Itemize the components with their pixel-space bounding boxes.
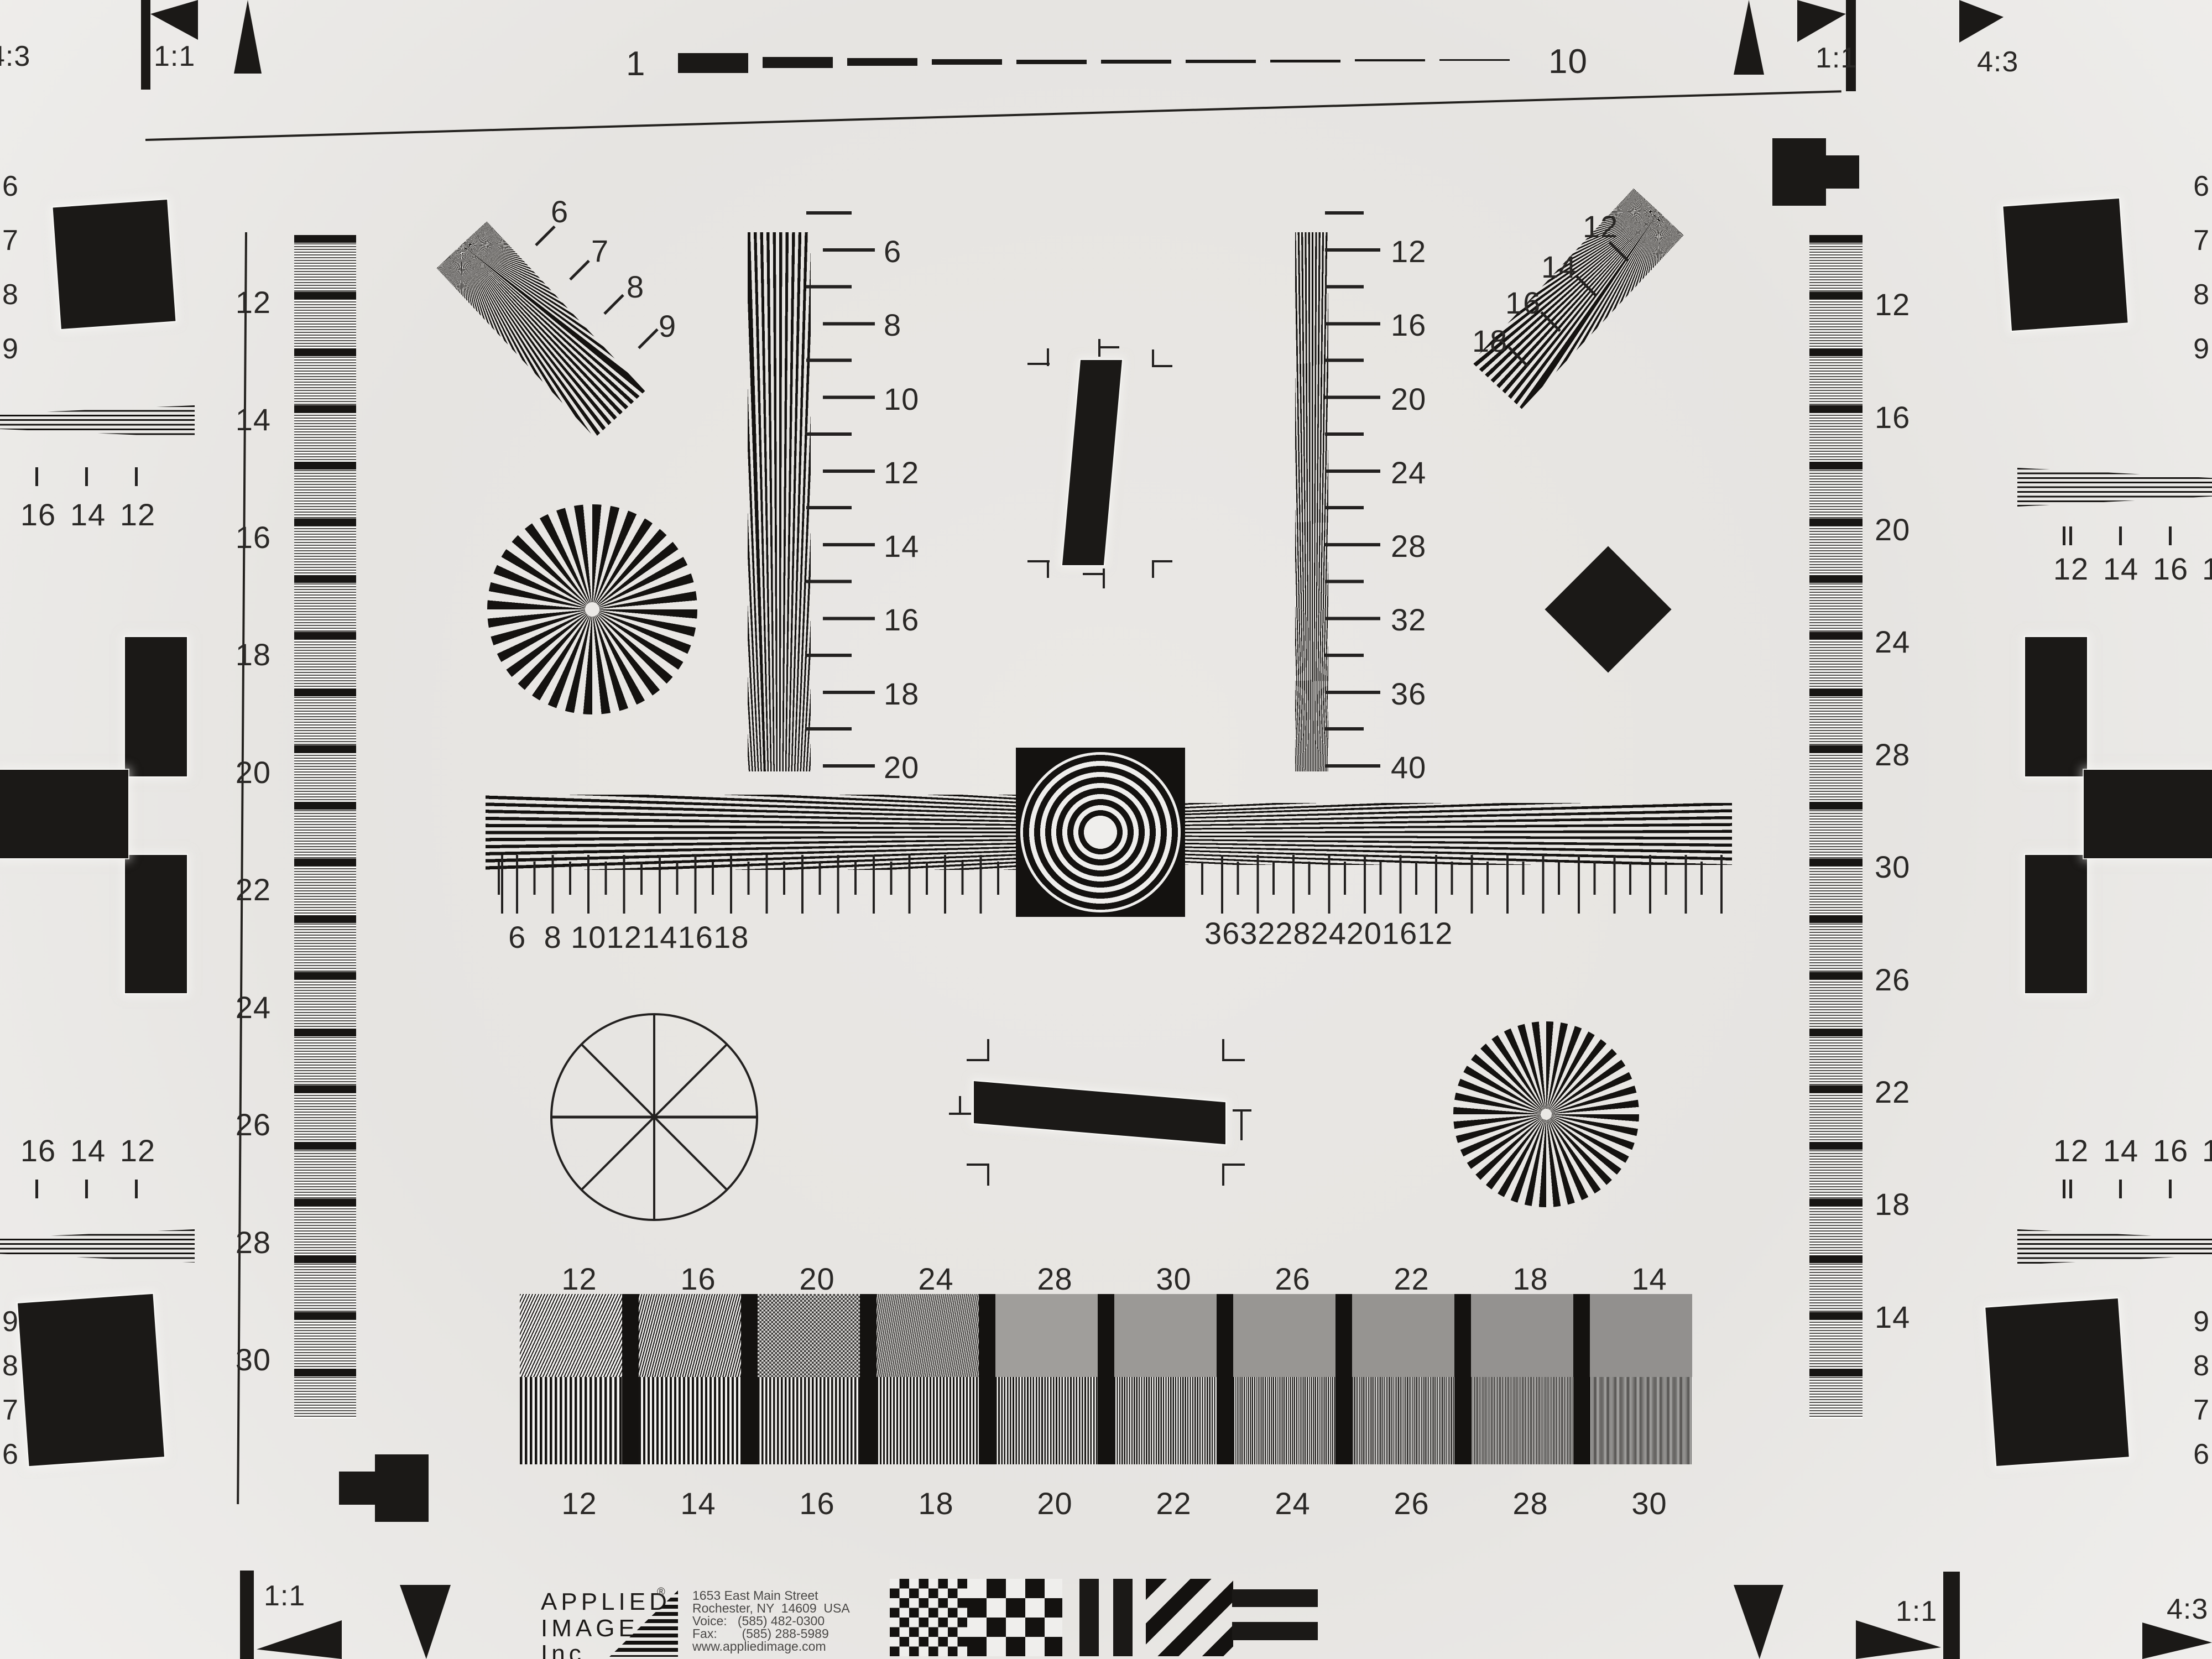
edge-number: 9 — [2, 322, 19, 376]
ruler-right-label: 20 — [1347, 915, 1382, 951]
edge-right-mid2-numbers: 121416 — [2046, 1133, 2195, 1168]
fan-tick — [569, 260, 589, 280]
wedge-right-label: 16 — [1391, 288, 1426, 362]
registration-bar-top-left — [141, 0, 150, 90]
freq-panel — [758, 1377, 860, 1464]
ruler-right-labels: 36322824201612 — [1204, 915, 1453, 951]
dash — [847, 58, 917, 66]
registration-bar-bottom-left — [240, 1571, 254, 1659]
ruler-right-short-ticks — [1201, 862, 1729, 895]
bracket — [987, 1164, 989, 1186]
ruler-right-label: 32 — [1240, 915, 1275, 951]
bracket — [1222, 1164, 1245, 1166]
grayscale-left-label: 30 — [236, 1301, 271, 1419]
block-bottom-label: 14 — [639, 1485, 758, 1521]
wedge-right-label: 28 — [1391, 509, 1426, 583]
edge-number: 8 — [2, 268, 19, 322]
wedge-right-label: 36 — [1391, 657, 1426, 731]
ruler-right-label: 16 — [1382, 915, 1417, 951]
dash — [1439, 59, 1510, 61]
right-beam-web — [2084, 770, 2212, 858]
wedge-right-label: 24 — [1391, 436, 1426, 509]
edge-number: 16 — [13, 497, 63, 533]
edge-number-cut: 8 — [0, 1133, 1, 1168]
ratio-label-top-right: 4:3 — [1977, 45, 2018, 79]
left-beam-top — [125, 637, 187, 776]
grayscale-right-label: 12 — [1875, 248, 1910, 361]
concentric-rings-target — [1016, 748, 1185, 917]
block-bottom-label: 30 — [1590, 1485, 1709, 1521]
edge-fan-left-top — [0, 405, 195, 437]
block-top-label: 20 — [758, 1261, 877, 1297]
ruler-left-label: 14 — [642, 919, 678, 955]
ruler-left-label: 8 — [535, 919, 571, 955]
checkerboard-fine — [890, 1579, 967, 1656]
dash — [1270, 60, 1340, 62]
block-top-label: 22 — [1352, 1261, 1471, 1297]
bracket — [1047, 560, 1049, 578]
edge-right-bottom-numbers: 9876 — [2177, 1300, 2210, 1477]
freq-panel — [639, 1377, 741, 1464]
dash — [932, 59, 1002, 65]
dash — [1101, 60, 1171, 64]
grayscale-right-label: 30 — [1875, 811, 1910, 923]
freq-panel — [1233, 1377, 1335, 1464]
grayscale-left-label: 28 — [236, 1183, 271, 1301]
bar-pointer-bottom-left-arm — [339, 1472, 375, 1505]
block-bottom-label: 20 — [995, 1485, 1114, 1521]
wedge-right-long-ticks — [1325, 248, 1380, 771]
block-bottom-label: 22 — [1114, 1485, 1233, 1521]
freq-panel — [1114, 1294, 1217, 1377]
right-beam-bottom — [2025, 855, 2087, 993]
horizontal-bar-pattern — [1232, 1622, 1318, 1640]
diagonal-stripe-pattern — [1146, 1579, 1233, 1656]
ruler-left-label: 12 — [607, 919, 643, 955]
edge-number: 8 — [2193, 268, 2210, 322]
bracket — [987, 1039, 989, 1061]
vertical-wedge-left — [748, 232, 811, 771]
wedge-left-label: 6 — [884, 215, 901, 288]
edge-number-cut: 8 — [0, 497, 1, 533]
dash — [1016, 60, 1087, 64]
vertical-bar-pattern — [1079, 1579, 1099, 1656]
vertical-bar-pattern — [1113, 1579, 1133, 1656]
corner-square-top-right — [2003, 199, 2127, 331]
edge-left-mid2-numbers: 161412 — [13, 1133, 163, 1168]
edge-number: 12 — [2046, 1133, 2096, 1168]
wedge-right-label: 40 — [1391, 731, 1426, 804]
right-arrow-icon — [1959, 0, 2004, 43]
fan-tick — [603, 294, 624, 315]
edge-right-mid-numbers: 121416 — [2046, 551, 2195, 587]
edge-number-cut: 1 — [2202, 1133, 2212, 1168]
scale-label-top-right: 1:1 — [1815, 41, 1857, 75]
freq-panel — [639, 1294, 741, 1377]
freq-panel — [1590, 1294, 1692, 1377]
tilt-test-line-horizontal — [145, 90, 1841, 141]
freq-panel — [1471, 1294, 1573, 1377]
edge-number: 9 — [2, 1300, 19, 1344]
logo-address-line: 1653 East Main Street — [692, 1589, 850, 1602]
grayscale-left-labels: 12141618202224262830 — [213, 243, 271, 1418]
edge-number: 12 — [113, 1133, 163, 1168]
wedge-right-label: 32 — [1391, 583, 1426, 656]
fan-label: 9 — [659, 308, 676, 344]
grayscale-right-labels: 12162024283026221814 — [1875, 248, 1941, 1373]
freq-panel — [1352, 1294, 1454, 1377]
freq-panel — [877, 1294, 979, 1377]
ruler-left-labels: 681012141618 — [499, 919, 749, 955]
registered-mark-icon: ® — [657, 1586, 665, 1599]
edge-number: 7 — [2193, 1388, 2210, 1432]
block-top-label: 28 — [995, 1261, 1114, 1297]
block-bottom-label: 12 — [520, 1485, 639, 1521]
right-arrow-icon — [2142, 1623, 2212, 1659]
edge-number: 6 — [2193, 159, 2210, 213]
bracket — [1152, 560, 1154, 578]
iso-resolution-test-chart: 1 10 4:3 1:1 1:1 4:3 1:1 1:1 4:3 — [0, 0, 2212, 1659]
grayscale-left-label: 18 — [236, 596, 271, 714]
grayscale-right-label: 14 — [1875, 1261, 1910, 1373]
logo-address-line: www.appliedimage.com — [692, 1640, 850, 1653]
block-bottom-labels: 12141618202224262830 — [520, 1485, 1709, 1521]
hyperbolic-fan-upper-left — [436, 221, 645, 438]
edge-number: 6 — [2193, 1432, 2210, 1477]
horizontal-bar-pattern — [1232, 1589, 1318, 1607]
right-arrow-icon — [1797, 0, 1846, 42]
fan-label: 8 — [627, 269, 644, 305]
bracket — [1027, 363, 1050, 365]
bracket — [1027, 560, 1050, 562]
wedge-left-long-ticks — [823, 248, 875, 771]
edge-number: 6 — [2, 1432, 19, 1477]
wedge-left-label: 10 — [884, 362, 919, 436]
fan-label: 14 — [1541, 249, 1577, 285]
edge-number: 8 — [2193, 1344, 2210, 1388]
logo-address-line: Fax: (585) 288-5989 — [692, 1627, 850, 1640]
bar-pointer-top-right — [1772, 138, 1826, 206]
up-triangle-icon — [1734, 0, 1764, 75]
ruler-left-short-ticks — [498, 862, 1012, 895]
ruler-left-label: 18 — [713, 919, 749, 955]
grayscale-left-label: 20 — [236, 713, 271, 831]
edge-number-cut: 1 — [2202, 551, 2212, 587]
edge-fan-left-bottom — [0, 1229, 195, 1262]
wedge-left-label: 16 — [884, 583, 919, 656]
ruler-right-label: 24 — [1311, 915, 1347, 951]
edge-ticks — [15, 467, 159, 486]
ratio-label-bottom-right: 4:3 — [2167, 1593, 2208, 1626]
wedge-left-label: 18 — [884, 657, 919, 731]
block-top-label: 30 — [1114, 1261, 1233, 1297]
scale-label-bottom-left: 1:1 — [264, 1579, 305, 1613]
fan-label: 7 — [591, 233, 609, 269]
edge-left-top-numbers: 6789 — [2, 159, 35, 376]
logo-image: IMAGE — [541, 1615, 639, 1642]
grayscale-right-label: 18 — [1875, 1148, 1910, 1260]
edge-left-bottom-numbers: 9876 — [2, 1300, 35, 1477]
dash — [1186, 60, 1256, 63]
logo-address: 1653 East Main StreetRochester, NY 14609… — [692, 1589, 850, 1653]
scale-label-bottom-right: 1:1 — [1896, 1595, 1937, 1628]
edge-ticks — [2056, 1180, 2212, 1198]
siemens-star-lower-right — [1453, 1021, 1639, 1207]
logo-address-line: Rochester, NY 14609 USA — [692, 1602, 850, 1615]
block-bottom-label: 28 — [1471, 1485, 1590, 1521]
edge-fan-right-top — [2017, 468, 2212, 507]
edge-number: 8 — [2, 1344, 19, 1388]
edge-fan-right-bottom — [2017, 1229, 2212, 1265]
ruler-left-label: 16 — [678, 919, 714, 955]
bracket — [1222, 1164, 1224, 1186]
bracket — [1222, 1059, 1245, 1061]
fan-label: 6 — [551, 194, 568, 229]
bar-pointer-top-right-arm — [1824, 155, 1859, 189]
grayscale-left-label: 24 — [236, 948, 271, 1066]
block-top-label: 16 — [639, 1261, 758, 1297]
grayscale-bar-right — [1809, 235, 1863, 1418]
bracket — [1152, 560, 1172, 562]
scale-label-top-left: 1:1 — [154, 40, 195, 73]
edge-number: 9 — [2193, 322, 2210, 376]
corner-square-bottom-left — [18, 1294, 164, 1466]
block-top-label: 26 — [1233, 1261, 1352, 1297]
wedge-left-label: 20 — [884, 731, 919, 804]
grayscale-left-label: 12 — [236, 243, 271, 361]
wedge-right-label: 20 — [1391, 362, 1426, 436]
bracket — [967, 1059, 989, 1061]
siemens-star-upper-left — [487, 504, 697, 714]
edge-right-top-numbers: 6789 — [2177, 159, 2210, 376]
down-triangle-icon — [400, 1585, 451, 1659]
edge-number: 16 — [2146, 1133, 2195, 1168]
freq-panel — [1590, 1377, 1692, 1464]
block-top-label: 14 — [1590, 1261, 1709, 1297]
dash — [763, 57, 833, 68]
slanted-edge-bar-vertical — [1062, 360, 1122, 565]
hyperbolic-fan-upper-right — [1472, 188, 1684, 409]
registration-bar-bottom-right — [1943, 1572, 1960, 1659]
edge-ticks — [2056, 526, 2212, 545]
freq-panel — [1233, 1294, 1335, 1377]
grayscale-left-label: 22 — [236, 831, 271, 949]
edge-ticks — [15, 1180, 159, 1198]
freq-panel — [995, 1377, 1098, 1464]
edge-number: 16 — [13, 1133, 63, 1168]
logo-applied: APPLIED — [541, 1588, 671, 1616]
frequency-block-top-row — [520, 1294, 1692, 1377]
wedge-left-label: 8 — [884, 288, 901, 362]
sector-circle — [549, 1012, 759, 1222]
freq-panel — [877, 1377, 979, 1464]
ruler-right-label: 36 — [1204, 915, 1240, 951]
edge-number: 6 — [2, 159, 19, 213]
edge-number: 7 — [2193, 213, 2210, 268]
bracket — [1152, 365, 1172, 367]
freq-panel — [520, 1294, 622, 1377]
dash — [678, 53, 748, 73]
left-beam-web — [0, 770, 128, 858]
fan-tick — [638, 328, 658, 349]
corner-square-top-left — [53, 200, 176, 329]
grayscale-left-label: 16 — [236, 478, 271, 596]
edge-number: 9 — [2193, 1300, 2210, 1344]
wedge-left-label: 12 — [884, 436, 919, 509]
edge-number: 12 — [2046, 551, 2096, 587]
grayscale-right-label: 22 — [1875, 1036, 1910, 1148]
block-bottom-label: 26 — [1352, 1485, 1471, 1521]
logo-address-line: Voice: (585) 482-0300 — [692, 1615, 850, 1627]
ruler-left-label: 10 — [571, 919, 607, 955]
left-beam-bottom — [125, 855, 187, 993]
grayscale-bar-left — [294, 235, 356, 1418]
bracket — [959, 1096, 961, 1115]
bracket — [1083, 573, 1105, 575]
block-top-label: 24 — [877, 1261, 995, 1297]
edge-left-mid-numbers: 161412 — [13, 497, 163, 533]
freq-panel — [758, 1294, 860, 1377]
bracket — [1240, 1109, 1243, 1140]
grayscale-right-label: 16 — [1875, 361, 1910, 473]
ruler-left-label: 6 — [499, 919, 535, 955]
vertical-wedge-right — [1295, 232, 1328, 771]
bracket — [1222, 1039, 1224, 1061]
left-arrow-icon — [257, 1620, 342, 1659]
grayscale-right-label: 20 — [1875, 473, 1910, 586]
wedge-left-labels: 68101214161820 — [884, 215, 945, 804]
grayscale-right-label: 24 — [1875, 586, 1910, 698]
wedge-right-labels: 1216202428323640 — [1391, 215, 1463, 804]
edge-number: 14 — [63, 497, 113, 533]
freq-panel — [520, 1377, 622, 1464]
diamond-square — [1545, 546, 1671, 672]
logo-inc: Inc — [541, 1640, 585, 1659]
down-triangle-icon — [1734, 1585, 1783, 1659]
edge-number: 12 — [113, 497, 163, 533]
wedge-right-label: 12 — [1391, 215, 1426, 288]
grayscale-left-label: 14 — [236, 361, 271, 479]
freq-panel — [995, 1294, 1098, 1377]
fan-tick — [535, 226, 555, 246]
top-scale-label-1: 1 — [626, 44, 645, 84]
left-arrow-icon — [150, 0, 198, 40]
up-triangle-icon — [234, 0, 262, 74]
corner-square-bottom-right — [1985, 1298, 2128, 1466]
fan-label: 16 — [1505, 285, 1541, 321]
freq-panel — [1471, 1377, 1573, 1464]
bar-pointer-bottom-left — [375, 1454, 429, 1522]
edge-number: 16 — [2146, 551, 2195, 587]
block-top-labels: 12162024283026221814 — [520, 1261, 1709, 1297]
grayscale-left-label: 26 — [236, 1066, 271, 1184]
block-bottom-label: 18 — [877, 1485, 995, 1521]
ratio-label-top-left: 4:3 — [0, 40, 30, 73]
freq-panel — [1352, 1377, 1454, 1464]
block-bottom-label: 24 — [1233, 1485, 1352, 1521]
bracket — [967, 1164, 989, 1166]
edge-number: 7 — [2, 213, 19, 268]
edge-number: 14 — [63, 1133, 113, 1168]
wedge-left-label: 14 — [884, 509, 919, 583]
block-top-label: 18 — [1471, 1261, 1590, 1297]
right-beam-top — [2025, 637, 2087, 776]
dash — [1355, 59, 1425, 61]
frequency-block-bottom-row — [520, 1377, 1692, 1464]
edge-number: 14 — [2096, 551, 2146, 587]
freq-panel — [1114, 1377, 1217, 1464]
edge-number: 14 — [2096, 1133, 2146, 1168]
fan-label: 18 — [1472, 323, 1507, 359]
top-scale-label-10: 10 — [1548, 42, 1588, 81]
grayscale-right-label: 28 — [1875, 698, 1910, 811]
checkerboard-coarse — [967, 1579, 1062, 1656]
slanted-edge-bar-horizontal — [974, 1081, 1225, 1144]
grayscale-right-label: 26 — [1875, 923, 1910, 1035]
block-bottom-label: 16 — [758, 1485, 877, 1521]
bracket — [949, 1113, 971, 1115]
fan-label: 12 — [1583, 208, 1618, 244]
edge-number: 7 — [2, 1388, 19, 1432]
bracket — [1103, 568, 1105, 588]
ruler-right-label: 28 — [1275, 915, 1311, 951]
bracket — [1098, 346, 1119, 348]
ruler-right-label: 12 — [1417, 915, 1453, 951]
block-top-label: 12 — [520, 1261, 639, 1297]
